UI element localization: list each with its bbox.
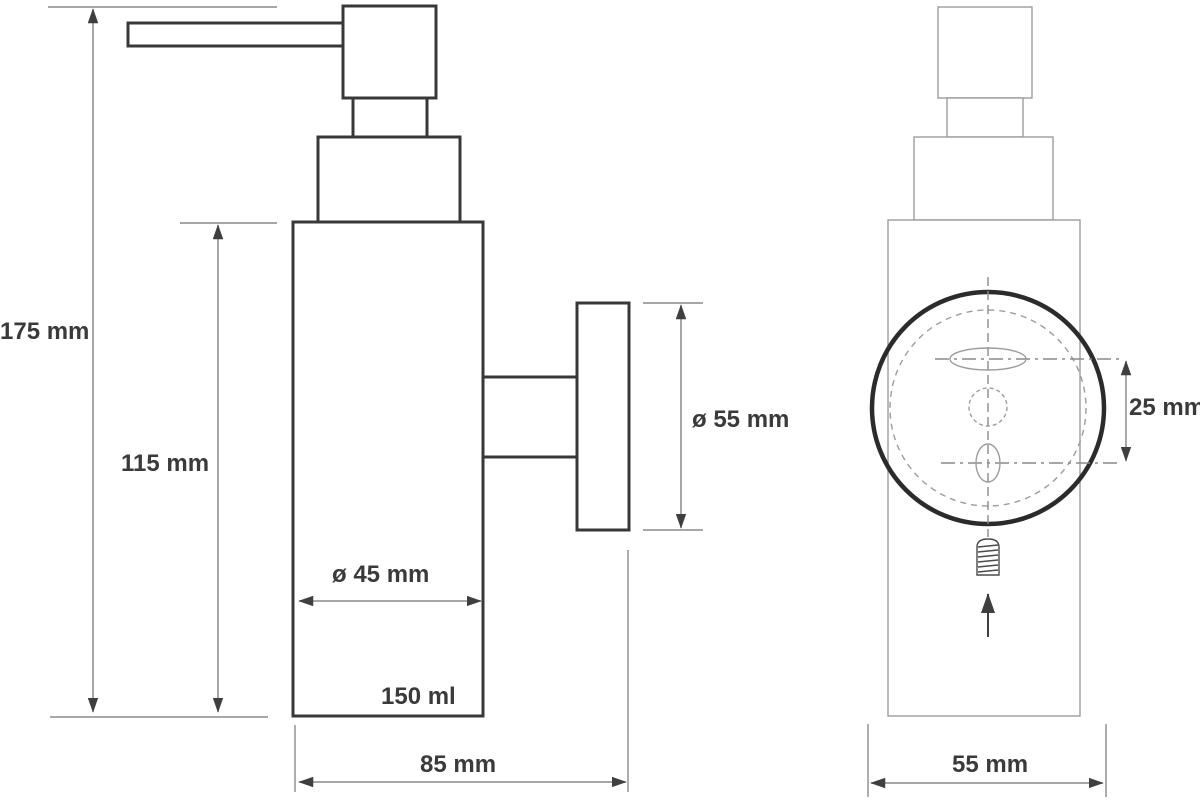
pump-collar [318,137,460,222]
front-bottle-body [888,220,1080,716]
spout-arm [128,23,343,46]
overall-depth-label: 85 mm [420,753,496,777]
drawing-canvas [0,0,1200,800]
side-view-drawing [128,6,629,716]
pump-head [343,6,436,98]
wall-flange-side [577,303,629,530]
front-pump-head [938,7,1032,98]
front-view-drawing [872,7,1122,716]
front-pump-neck [947,98,1023,137]
overall-height-label: 175 mm [0,320,89,344]
overall-width-label: 55 mm [952,753,1028,777]
pump-neck [353,98,427,137]
flange-diameter-label: ø 55 mm [692,408,789,432]
technical-drawing-page: 175 mm 115 mm ø 45 mm 150 ml 85 mm ø 55 … [0,0,1200,800]
hole-spacing-label: 25 mm [1129,396,1200,420]
body-height-label: 115 mm [121,452,209,476]
body-diameter-label: ø 45 mm [332,563,429,587]
mounting-screw [977,539,999,575]
front-pump-collar [914,137,1053,220]
bottle-body [293,222,483,716]
capacity-label: 150 ml [381,685,456,709]
